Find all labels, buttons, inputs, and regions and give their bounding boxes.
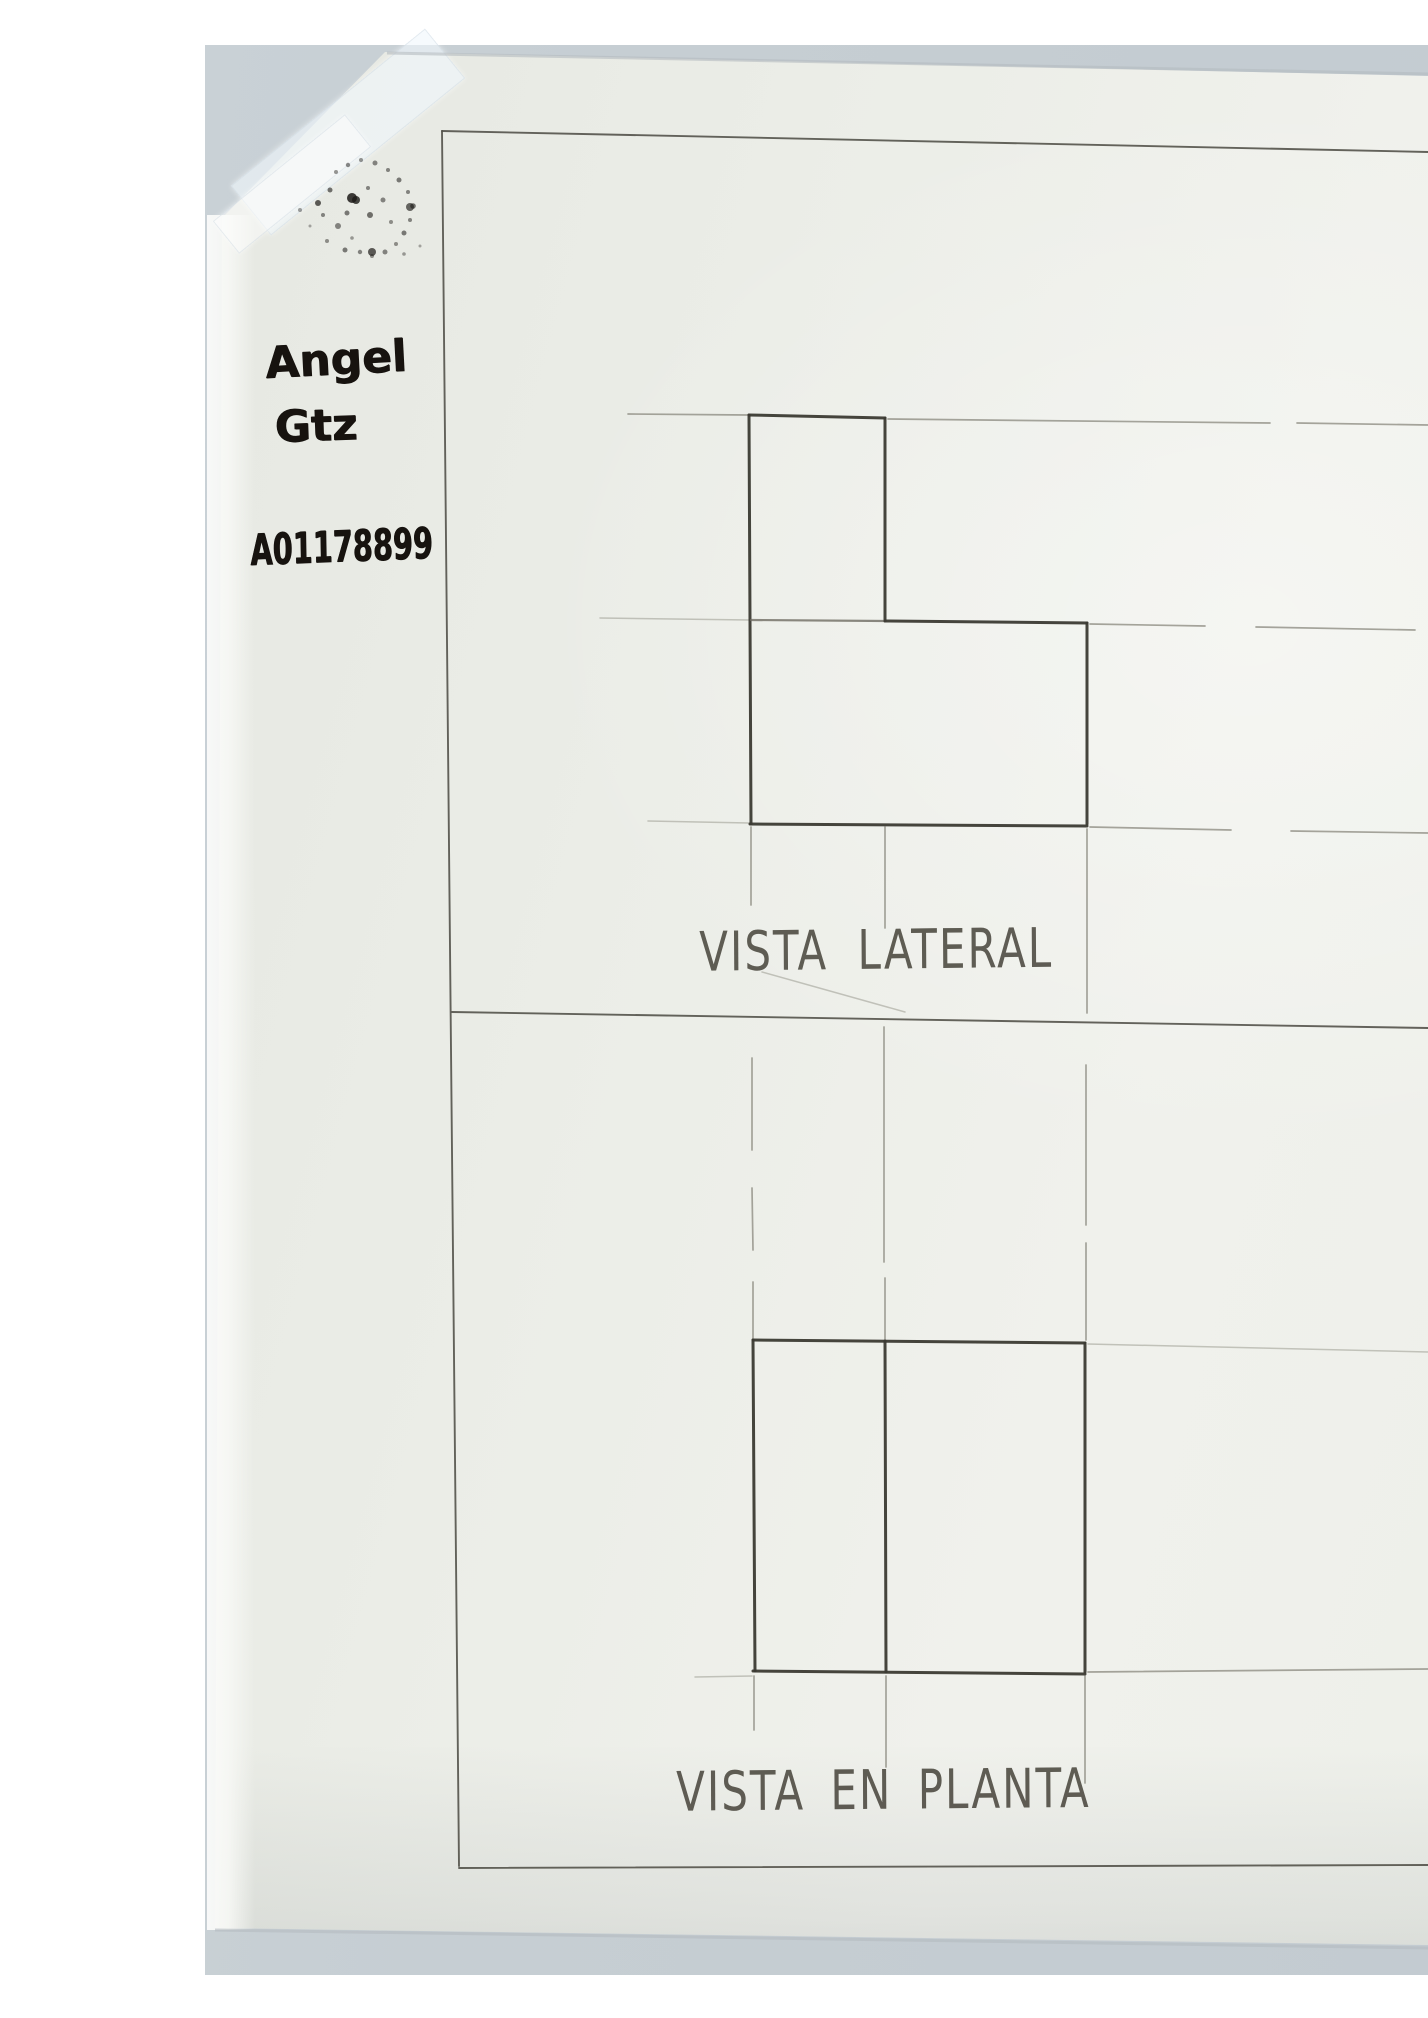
- student-first-name: Angel: [264, 331, 408, 389]
- scanned-photo-canvas: VISTA LATERAL VISTA EN PLANTA Angel Gtz …: [0, 0, 1428, 2018]
- paper-left-edge: [207, 215, 255, 1930]
- plan-view-label: VISTA EN PLANTA: [676, 1756, 1091, 1823]
- side-view-label: VISTA LATERAL: [699, 916, 1053, 984]
- student-id: A01178899: [250, 519, 433, 576]
- student-last-name: Gtz: [274, 399, 358, 453]
